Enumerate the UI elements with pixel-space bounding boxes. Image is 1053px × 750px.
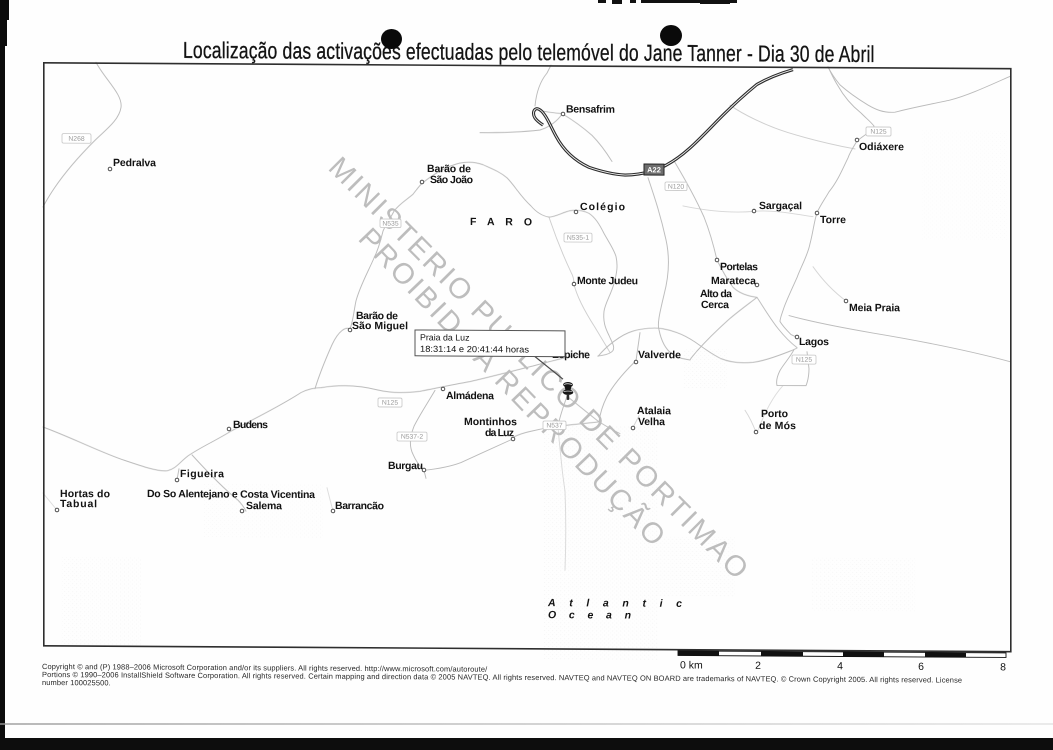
svg-text:Do So Alentejano e Costa Vicen: Do So Alentejano e Costa Vicentina	[147, 488, 315, 501]
svg-text:8: 8	[1000, 661, 1006, 673]
svg-text:18:31:14 e 20:41:44 horas: 18:31:14 e 20:41:44 horas	[420, 344, 530, 355]
svg-text:Salema: Salema	[246, 500, 282, 512]
svg-text:Cerca: Cerca	[701, 299, 729, 311]
svg-text:Budens: Budens	[233, 419, 268, 431]
svg-text:Sargaçal: Sargaçal	[759, 200, 802, 212]
svg-text:Porto: Porto	[761, 408, 788, 420]
svg-text:N268: N268	[68, 136, 84, 143]
svg-text:Monte Judeu: Monte Judeu	[577, 275, 638, 287]
svg-text:Praia da Luz: Praia da Luz	[420, 332, 470, 342]
svg-text:Odiáxere: Odiáxere	[859, 141, 904, 153]
svg-text:N535: N535	[382, 221, 398, 228]
svg-text:Bensafrim: Bensafrim	[566, 103, 615, 115]
svg-text:São Miguel: São Miguel	[352, 320, 408, 332]
svg-text:Almádena: Almádena	[446, 390, 494, 402]
svg-text:Figueira: Figueira	[180, 468, 224, 480]
svg-text:de Mós: de Mós	[759, 420, 796, 432]
svg-text:Marateca: Marateca	[711, 275, 756, 287]
svg-text:N537: N537	[546, 422, 562, 429]
svg-text:PROIBIDA A REPRODUÇÃO: PROIBIDA A REPRODUÇÃO	[352, 221, 674, 555]
svg-text:Lagos: Lagos	[799, 336, 829, 348]
svg-text:Tabual: Tabual	[60, 498, 97, 510]
svg-text:Barrancão: Barrancão	[335, 500, 384, 512]
svg-text:Meia Praia: Meia Praia	[849, 302, 900, 314]
svg-text:N120: N120	[668, 184, 684, 191]
svg-text:N535-1: N535-1	[567, 235, 590, 242]
svg-text:Colégio: Colégio	[580, 201, 625, 213]
svg-text:Velha: Velha	[638, 416, 665, 428]
svg-text:Torre: Torre	[820, 214, 846, 226]
svg-text:Burgau: Burgau	[388, 460, 423, 472]
svg-text:N537-2: N537-2	[401, 434, 424, 441]
svg-text:A22: A22	[647, 165, 661, 174]
svg-text:Valverde: Valverde	[638, 349, 681, 361]
svg-text:da Luz: da Luz	[485, 427, 514, 439]
svg-text:São João: São João	[430, 174, 473, 186]
svg-text:F A R O: F A R O	[470, 216, 532, 228]
svg-text:Pedralva: Pedralva	[113, 157, 156, 169]
svg-text:N125: N125	[796, 357, 812, 364]
svg-text:N125: N125	[870, 129, 886, 136]
svg-text:N125: N125	[382, 400, 398, 407]
svg-text:Portelas: Portelas	[720, 261, 758, 273]
